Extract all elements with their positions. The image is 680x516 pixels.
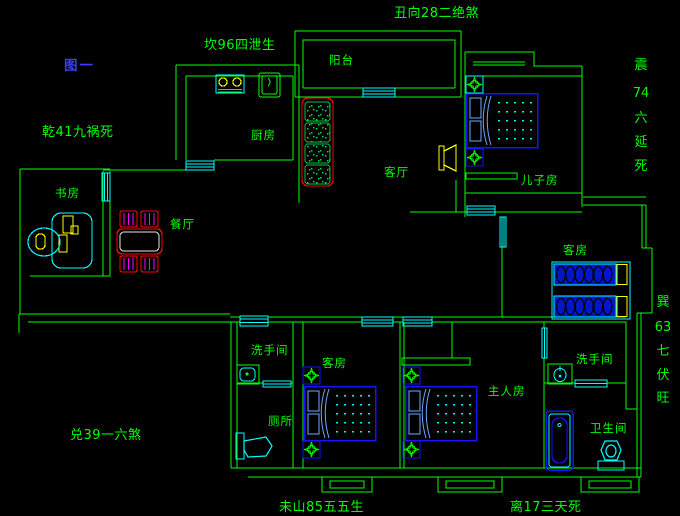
door-toilet (263, 381, 291, 387)
dining-chair (141, 211, 158, 227)
basin-right (548, 364, 572, 384)
fengshui-right-upper-char: 74 (633, 86, 650, 101)
wall-bump-1-inner (330, 481, 364, 488)
toilet-left (236, 433, 272, 459)
wall-bump-3-inner (589, 481, 631, 488)
wall-bump-2 (438, 477, 502, 492)
basin-left (237, 365, 259, 384)
floorplan-canvas: 图一 丑向28二绝煞 坎96四泄生 乾41九祸死 兑39一六煞 未山85五五生 … (0, 0, 680, 516)
fengshui-bottom-left: 未山85五五生 (279, 500, 364, 515)
lamp-guest-1 (303, 367, 320, 384)
sofa (302, 98, 333, 186)
door-master (403, 317, 432, 326)
bed-twin-2 (554, 296, 627, 317)
fengshui-right-upper-char: 震 (634, 58, 647, 73)
wall-kids-room (410, 52, 582, 217)
wall-balcony (295, 31, 461, 97)
bathtub (546, 411, 573, 470)
lamp-kids-2 (466, 149, 483, 166)
door-washroom-bathroom (575, 380, 607, 387)
lamp-master-2 (403, 441, 420, 458)
fengshui-right-upper: 震 74 六 延 死 (633, 58, 650, 174)
window-kids (467, 206, 495, 215)
label-kitchen: 厨房 (251, 128, 276, 142)
label-guest-top: 客房 (563, 243, 588, 257)
label-dining: 餐厅 (170, 217, 195, 231)
door-master-washroom (542, 328, 547, 358)
fengshui-top-left: 坎96四泄生 (204, 38, 276, 53)
lamp-master-1 (403, 367, 420, 384)
fengshui-right-lower: 巽 63 七 伏 旺 (655, 295, 672, 406)
shelf-kids (466, 173, 517, 179)
bed-master (406, 387, 477, 441)
fengshui-right-lower-char: 63 (655, 320, 672, 335)
fengshui-right-lower-char: 巽 (656, 295, 669, 310)
study-chair (28, 228, 60, 256)
label-master: 主人房 (488, 384, 526, 398)
fengshui-top: 丑向28二绝煞 (394, 5, 479, 21)
fengshui-left-upper: 乾41九祸死 (42, 125, 114, 140)
wall-bottom (231, 468, 641, 477)
dining-chair (120, 211, 137, 227)
fengshui-right-upper-char: 延 (634, 135, 647, 150)
dining-chair (120, 256, 137, 272)
label-kids-room: 儿子房 (521, 173, 559, 187)
wall-bump-2-inner (446, 481, 494, 488)
fengshui-right-upper-char: 六 (634, 111, 647, 126)
fengshui-right-lower-char: 伏 (656, 368, 669, 383)
fengshui-right-lower-char: 旺 (656, 391, 669, 406)
label-bathroom: 卫生间 (590, 421, 628, 435)
dining-table (117, 229, 162, 254)
tv (439, 145, 456, 171)
bed-guest-bottom (305, 387, 376, 441)
fengshui-bottom-right: 离17三天死 (510, 499, 582, 515)
wardrobe-master (402, 358, 470, 365)
label-guest-bottom: 客房 (322, 356, 347, 370)
study-desk (52, 213, 92, 268)
window-kitchen (186, 161, 214, 170)
door-washroom-left (240, 316, 268, 326)
door-kids (500, 217, 506, 247)
label-study: 书房 (55, 186, 80, 200)
label-toilet: 厕所 (268, 414, 293, 428)
wall-bump-3 (581, 477, 639, 492)
window-balcony (363, 88, 395, 97)
beds-guest-top (552, 262, 630, 319)
door-guest-bottom (362, 317, 393, 326)
stove (216, 75, 244, 93)
fengshui-left-lower: 兑39一六煞 (70, 428, 142, 443)
dining-chairs (120, 211, 158, 272)
label-balcony: 阳台 (329, 53, 354, 67)
bed-twin-1 (554, 264, 627, 285)
wall-left-bottom (19, 314, 230, 333)
bed-kids (467, 94, 538, 148)
label-washroom-left: 洗手间 (251, 343, 289, 357)
dining-chair (141, 256, 158, 272)
fengshui-right-upper-char: 死 (634, 159, 647, 174)
toilet-right (598, 441, 624, 470)
lamp-kids-1 (466, 76, 483, 93)
fengshui-right-lower-char: 七 (656, 344, 669, 359)
wall-east (583, 197, 652, 477)
lamp-guest-2 (303, 441, 320, 458)
label-living: 客厅 (384, 165, 409, 179)
figure-label: 图一 (64, 58, 95, 74)
label-washroom-right: 洗手间 (576, 352, 614, 366)
